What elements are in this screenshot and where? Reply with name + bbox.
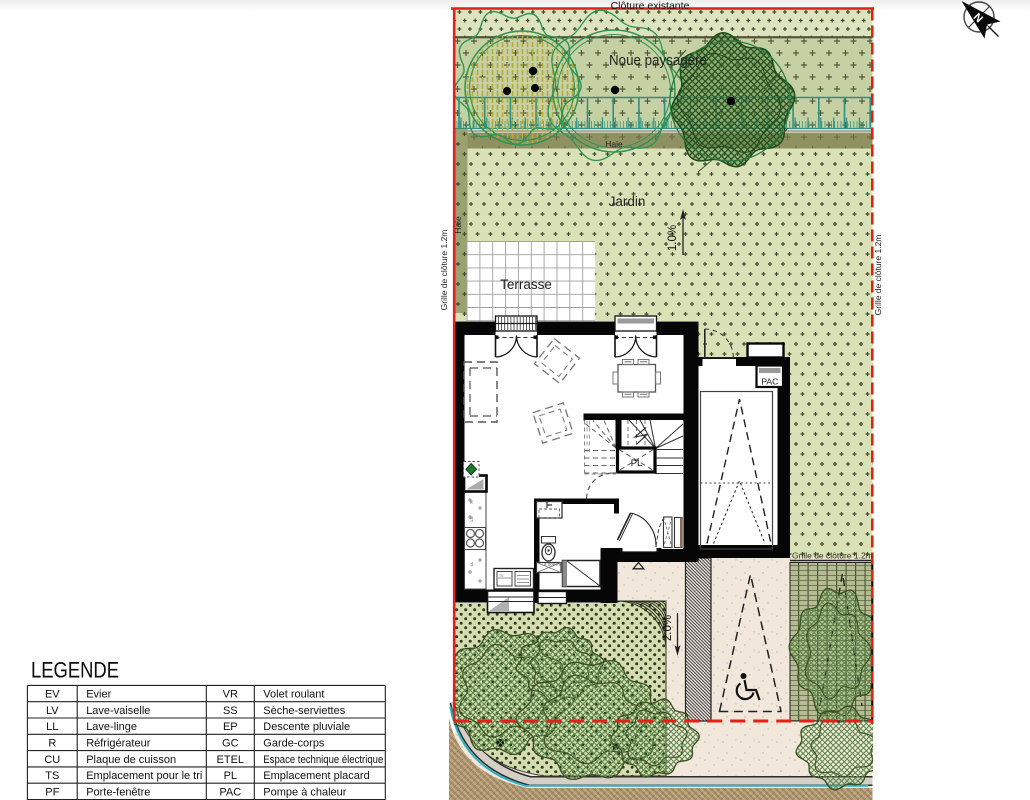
svg-text:TS: TS xyxy=(45,770,59,782)
svg-text:Emplacement placard: Emplacement placard xyxy=(263,770,369,782)
svg-text:EP: EP xyxy=(223,721,238,733)
svg-text:Grille de clôture 1.2m: Grille de clôture 1.2m xyxy=(792,551,873,561)
svg-text:TS: TS xyxy=(499,574,504,578)
svg-text:EV: EV xyxy=(45,689,60,701)
svg-text:à douche: à douche xyxy=(544,562,563,567)
svg-text:Garde-corps: Garde-corps xyxy=(263,738,325,750)
svg-text:Volet roulant: Volet roulant xyxy=(263,689,324,701)
svg-text:Emplacement pour le tri: Emplacement pour le tri xyxy=(86,770,202,782)
svg-text:Porte-fenêtre: Porte-fenêtre xyxy=(86,786,150,798)
svg-text:Réfrigérateur: Réfrigérateur xyxy=(86,738,151,750)
svg-text:Grille de clôture 1.2m: Grille de clôture 1.2m xyxy=(439,230,449,311)
svg-text:GC: GC xyxy=(222,738,239,750)
svg-text:PAC: PAC xyxy=(761,377,778,387)
svg-text:Pompe à chaleur: Pompe à chaleur xyxy=(263,786,346,798)
svg-text:Haie: Haie xyxy=(605,139,623,149)
svg-text:Jardin: Jardin xyxy=(609,194,646,209)
svg-text:LL: LL xyxy=(46,721,58,733)
svg-text:R: R xyxy=(48,738,56,750)
svg-text:PL: PL xyxy=(224,770,237,782)
svg-text:PAC: PAC xyxy=(219,786,241,798)
svg-text:Clôture existante: Clôture existante xyxy=(611,0,690,12)
svg-text:LL: LL xyxy=(469,561,474,567)
svg-text:PL: PL xyxy=(631,458,643,469)
svg-text:Lave-linge: Lave-linge xyxy=(86,721,137,733)
svg-text:Evier: Evier xyxy=(86,689,111,701)
svg-text:2.0%: 2.0% xyxy=(662,615,674,641)
svg-text:Haie: Haie xyxy=(453,216,463,234)
svg-text:PF: PF xyxy=(45,786,59,798)
svg-text:LV: LV xyxy=(46,705,59,717)
svg-text:ETEL: ETEL xyxy=(217,754,245,766)
svg-text:SS: SS xyxy=(223,705,238,717)
svg-text:Sèche-serviettes: Sèche-serviettes xyxy=(263,705,345,717)
svg-text:Espace technique électrique: Espace technique électrique xyxy=(263,754,383,766)
svg-text:Terrasse: Terrasse xyxy=(500,277,552,292)
svg-text:1.0%: 1.0% xyxy=(667,225,679,251)
svg-text:VR: VR xyxy=(223,689,238,701)
svg-text:Descente pluviale: Descente pluviale xyxy=(263,721,350,733)
svg-text:LV: LV xyxy=(469,516,474,521)
svg-text:LEGENDE: LEGENDE xyxy=(31,658,119,683)
svg-text:Lave-vaiselle: Lave-vaiselle xyxy=(86,705,150,717)
svg-text:CU: CU xyxy=(44,754,60,766)
svg-text:Noue paysagère: Noue paysagère xyxy=(609,53,707,69)
svg-text:Plaque de cuisson: Plaque de cuisson xyxy=(86,754,176,766)
svg-text:Grille de clôture 1.2m: Grille de clôture 1.2m xyxy=(873,235,883,316)
